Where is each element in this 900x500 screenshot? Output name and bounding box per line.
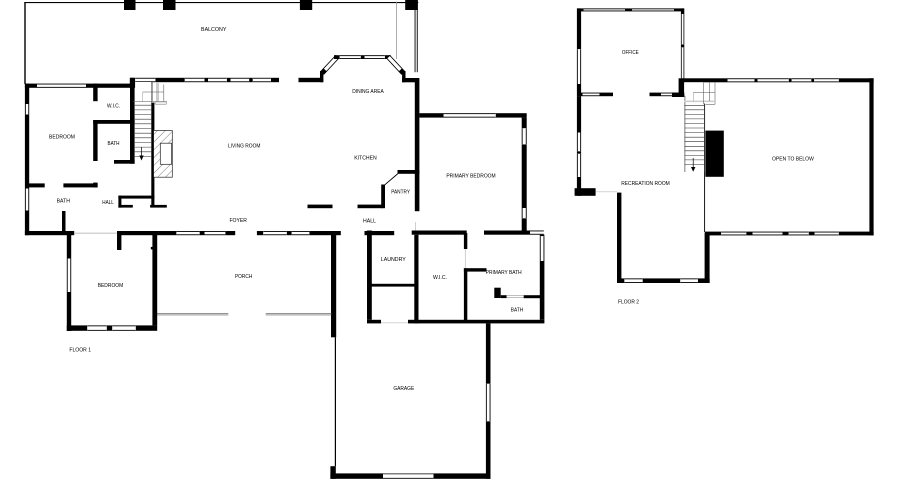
svg-text:PRIMARY BATH: PRIMARY BATH bbox=[486, 270, 522, 276]
svg-text:PORCH: PORCH bbox=[235, 274, 252, 280]
svg-text:BEDROOM: BEDROOM bbox=[98, 283, 124, 289]
svg-text:FLOOR 1: FLOOR 1 bbox=[69, 348, 91, 354]
svg-text:W.I.C.: W.I.C. bbox=[433, 275, 447, 281]
svg-text:BATH: BATH bbox=[511, 308, 523, 314]
svg-text:PRIMARY BEDROOM: PRIMARY BEDROOM bbox=[446, 173, 496, 179]
svg-text:OPEN TO BELOW: OPEN TO BELOW bbox=[772, 157, 814, 163]
svg-text:BALCONY: BALCONY bbox=[201, 27, 227, 33]
svg-text:OFFICE: OFFICE bbox=[622, 50, 639, 56]
svg-text:PANTRY: PANTRY bbox=[391, 190, 410, 196]
svg-text:DINING AREA: DINING AREA bbox=[352, 89, 384, 95]
svg-text:BATH: BATH bbox=[108, 141, 120, 147]
svg-text:FLOOR 2: FLOOR 2 bbox=[618, 299, 639, 305]
svg-text:RECREATION ROOM: RECREATION ROOM bbox=[621, 181, 670, 187]
svg-text:BATH: BATH bbox=[57, 199, 70, 205]
svg-text:HALL: HALL bbox=[363, 219, 376, 225]
svg-text:W.I.C.: W.I.C. bbox=[107, 104, 120, 110]
svg-text:FOYER: FOYER bbox=[229, 218, 247, 224]
svg-text:GARAGE: GARAGE bbox=[393, 386, 414, 392]
svg-text:LAUNDRY: LAUNDRY bbox=[381, 257, 406, 263]
svg-text:KITCHEN: KITCHEN bbox=[354, 155, 377, 161]
svg-text:HALL: HALL bbox=[102, 200, 114, 206]
svg-text:LIVING ROOM: LIVING ROOM bbox=[228, 143, 261, 149]
svg-text:BEDROOM: BEDROOM bbox=[49, 134, 75, 140]
